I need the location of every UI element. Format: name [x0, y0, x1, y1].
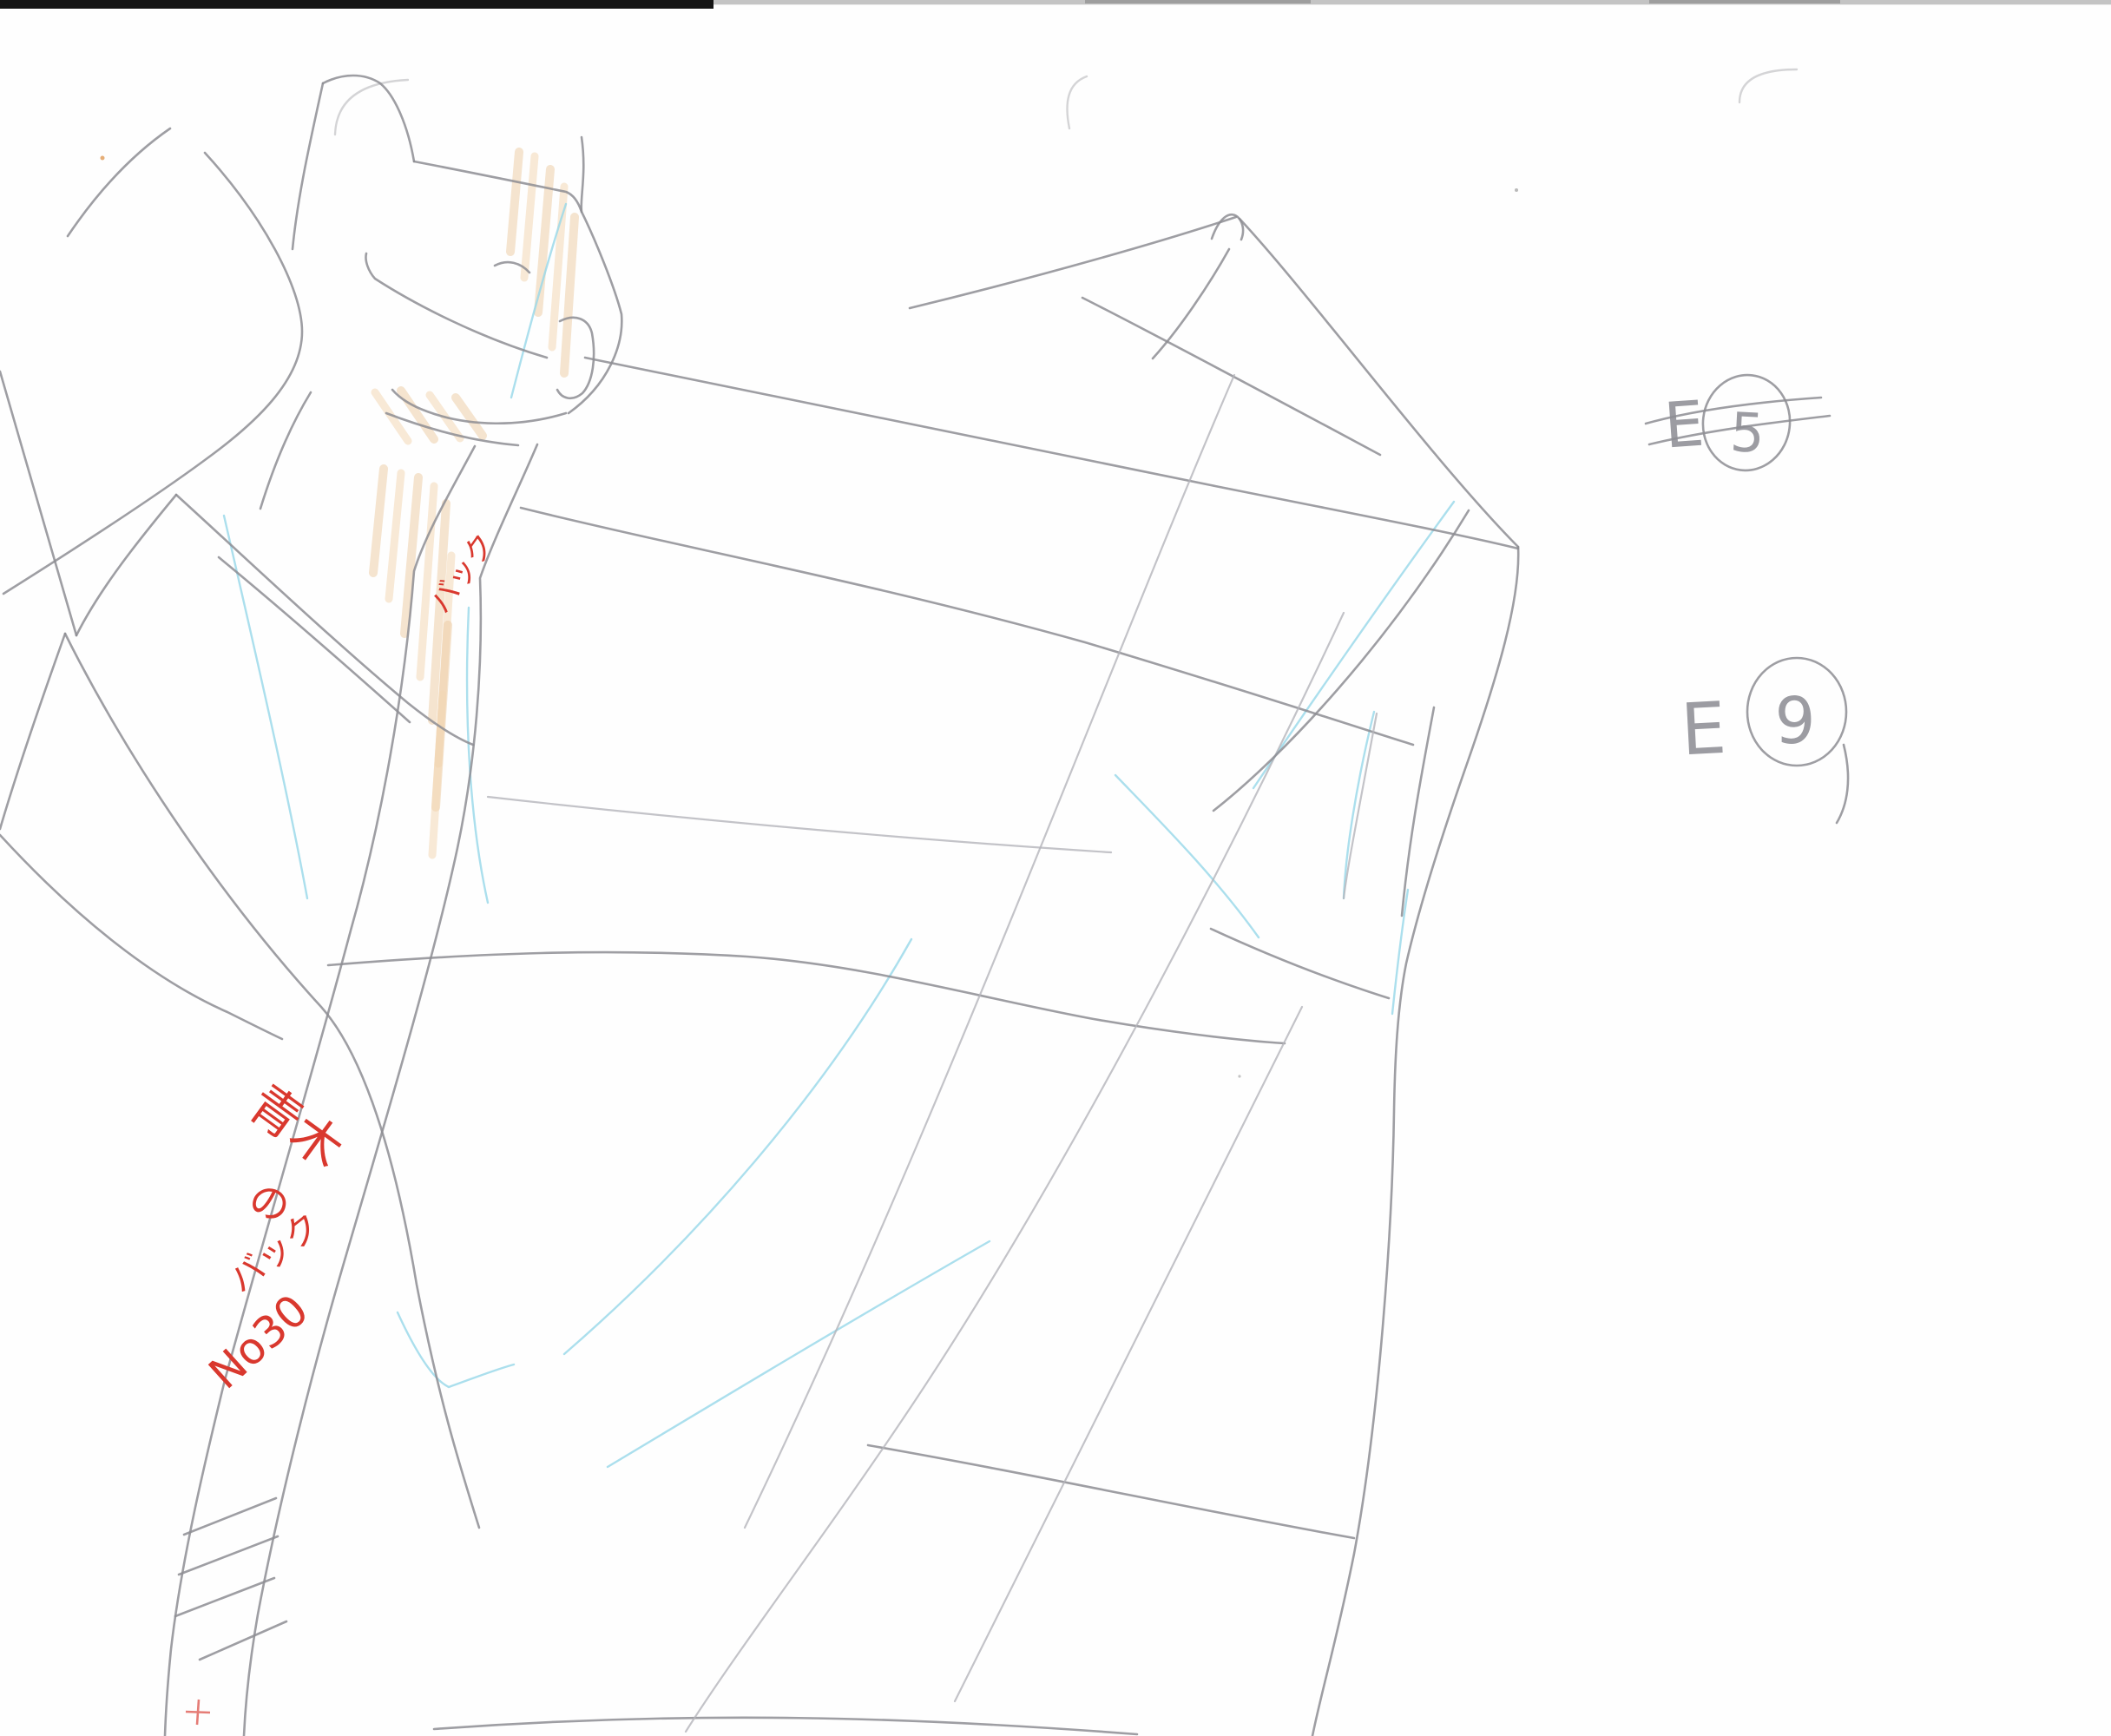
scan-edge-artifacts [0, 0, 2111, 9]
blue-pencil-lines [224, 204, 1454, 1467]
cut-label-e5-number: 5 [1729, 400, 1766, 465]
bag-note-name: 青木 [238, 1074, 354, 1180]
bag-note-number: No30 [200, 1285, 319, 1398]
stripe-lines [328, 358, 1518, 1734]
strap-note-text: バック [423, 527, 502, 619]
cut-label-e5-letter: E [1662, 387, 1707, 463]
red-plus-mark [186, 1700, 210, 1725]
corner-curl-mark [1067, 76, 1087, 128]
cut-label-e5: E 5 [1646, 370, 1830, 475]
scan-edge-black-bar [0, 0, 714, 9]
pencil-specks [1238, 188, 1518, 1078]
scanned-genga-sheet: E 5 E 9 バック 青木 の バック No30 [0, 0, 2111, 1736]
e9-circle-tail [1837, 745, 1848, 823]
cut-label-e9: E 9 [1679, 658, 1848, 823]
scan-edge-gray-bar [714, 0, 2111, 4]
red-annotations: バック 青木 の バック No30 [186, 527, 502, 1725]
sleeve-lines [0, 128, 479, 1528]
pencil-sketch [0, 76, 1518, 1736]
cut-label-e9-letter: E [1679, 687, 1728, 773]
pencil-speck [101, 156, 105, 161]
skin-shading [101, 152, 575, 855]
corner-curl-marks [335, 69, 1797, 135]
fold-lines [686, 375, 1469, 1732]
scan-edge-dash [1085, 0, 1311, 3]
cut-label-e9-number: 9 [1774, 684, 1815, 759]
artwork-canvas: E 5 E 9 バック 青木 の バック No30 [0, 0, 2111, 1736]
bag-strap-lines [165, 444, 537, 1736]
scan-edge-dash [1649, 0, 1840, 3]
corner-curl-mark [1739, 69, 1797, 102]
